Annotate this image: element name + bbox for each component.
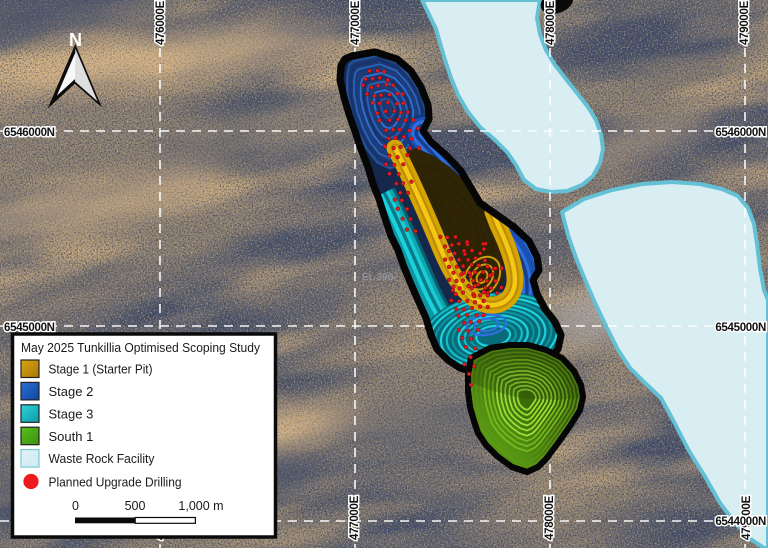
svg-text:Stage 2: Stage 2 (49, 384, 94, 399)
svg-text:6545000N: 6545000N (4, 322, 55, 334)
svg-text:6546000N: 6546000N (4, 127, 55, 139)
svg-text:478000E: 478000E (545, 0, 557, 45)
svg-text:476000E: 476000E (155, 0, 167, 45)
svg-text:479000E: 479000E (739, 0, 751, 45)
svg-text:478000E: 478000E (544, 495, 556, 540)
svg-text:6546000N: 6546000N (715, 127, 766, 139)
svg-text:500: 500 (125, 499, 146, 513)
svg-text:Stage 3: Stage 3 (49, 406, 94, 421)
svg-text:6544000N: 6544000N (715, 516, 766, 528)
svg-text:6545000N: 6545000N (715, 322, 766, 334)
svg-text:South 1: South 1 (49, 429, 94, 444)
svg-text:Waste Rock Facility: Waste Rock Facility (49, 451, 155, 466)
svg-text:1,000 m: 1,000 m (178, 499, 223, 513)
svg-text:May 2025 Tunkillia Optimised S: May 2025 Tunkillia Optimised Scoping Stu… (21, 340, 260, 355)
svg-text:477000E: 477000E (349, 495, 361, 540)
svg-text:0: 0 (72, 499, 79, 513)
svg-text:EL 390: EL 390 (362, 272, 394, 283)
svg-text:Stage 1 (Starter Pit): Stage 1 (Starter Pit) (49, 362, 153, 377)
svg-text:477000E: 477000E (350, 0, 362, 45)
svg-text:Planned Upgrade Drilling: Planned Upgrade Drilling (49, 474, 182, 489)
